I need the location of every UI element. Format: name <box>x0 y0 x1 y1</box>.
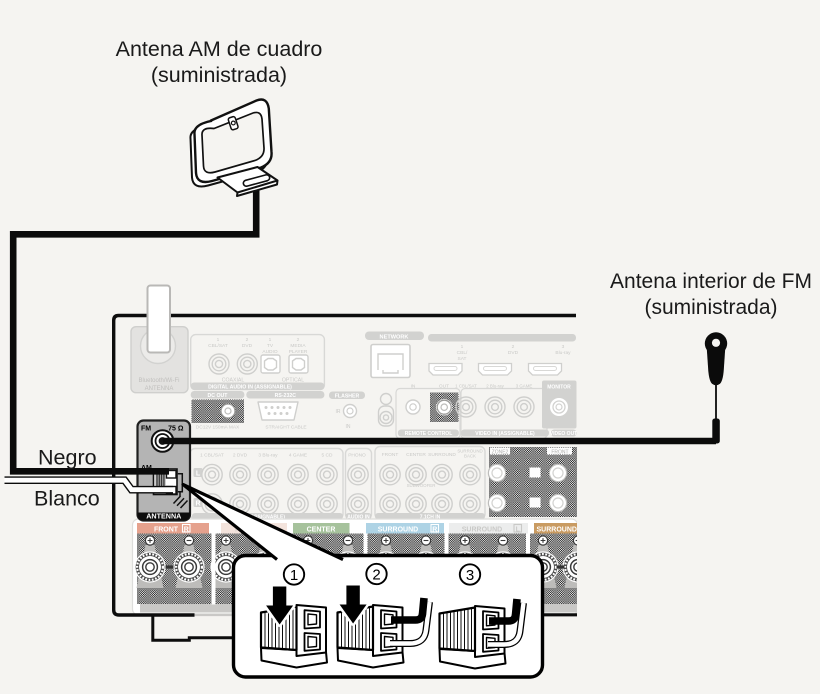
svg-text:Bluetooth/Wi-Fi: Bluetooth/Wi-Fi <box>138 378 179 384</box>
svg-text:CBL/: CBL/ <box>457 350 468 356</box>
svg-text:Negro: Negro <box>38 446 97 470</box>
svg-text:1: 1 <box>217 337 220 343</box>
svg-text:ANTENNA: ANTENNA <box>145 386 174 392</box>
svg-text:MONITOR: MONITOR <box>547 385 571 391</box>
svg-text:SURROUND: SURROUND <box>378 527 418 534</box>
svg-text:R: R <box>184 526 189 533</box>
svg-text:DC OUT: DC OUT <box>208 393 229 399</box>
svg-text:ZONE2: ZONE2 <box>492 450 509 456</box>
svg-text:PHONO: PHONO <box>348 453 366 459</box>
svg-text:Blu-ray: Blu-ray <box>555 350 571 356</box>
svg-text:1 CBL/SAT: 1 CBL/SAT <box>455 384 477 389</box>
svg-text:FRONT: FRONT <box>154 527 179 534</box>
svg-text:IN: IN <box>346 424 351 430</box>
svg-text:3 Blu-ray: 3 Blu-ray <box>258 453 278 459</box>
svg-text:FRONT: FRONT <box>382 452 399 458</box>
svg-text:1: 1 <box>290 567 298 584</box>
svg-text:FLASHER: FLASHER <box>335 394 360 400</box>
svg-text:CBL/SAT: CBL/SAT <box>208 343 228 349</box>
svg-text:STRAIGHT CABLE: STRAIGHT CABLE <box>265 425 306 431</box>
svg-text:VIDEO IN (ASSIGNABLE): VIDEO IN (ASSIGNABLE) <box>475 431 535 437</box>
svg-text:2: 2 <box>512 344 515 350</box>
svg-text:TV: TV <box>267 343 274 349</box>
svg-text:Antena AM de cuadro: Antena AM de cuadro <box>116 37 323 61</box>
svg-text:ANTENNA: ANTENNA <box>146 512 181 521</box>
svg-text:RS-232C: RS-232C <box>275 393 297 399</box>
svg-text:REMOTE CONTROL: REMOTE CONTROL <box>405 431 453 437</box>
svg-text:BACK: BACK <box>464 454 476 459</box>
svg-text:CENTER: CENTER <box>406 452 426 458</box>
svg-text:MEDIA: MEDIA <box>290 343 306 349</box>
svg-text:3: 3 <box>466 567 474 584</box>
svg-text:(suministrada): (suministrada) <box>644 296 777 319</box>
svg-text:CENTER: CENTER <box>307 527 336 534</box>
svg-text:1: 1 <box>461 344 464 350</box>
svg-text:DVD: DVD <box>508 350 519 356</box>
svg-text:2 Blu-ray: 2 Blu-ray <box>486 384 504 389</box>
svg-text:R: R <box>195 501 200 508</box>
svg-text:2: 2 <box>297 337 300 343</box>
svg-text:L: L <box>516 526 521 533</box>
svg-text:2 DVD: 2 DVD <box>233 453 248 459</box>
svg-text:SUBWOOFER: SUBWOOFER <box>407 483 436 488</box>
svg-text:Antena interior de FM: Antena interior de FM <box>610 270 812 293</box>
svg-text:75 Ω: 75 Ω <box>168 426 184 433</box>
svg-text:R: R <box>432 526 437 533</box>
svg-text:DVD: DVD <box>242 343 253 349</box>
svg-text:(suministrada): (suministrada) <box>151 63 287 87</box>
svg-text:DC12V 150mA MAX: DC12V 150mA MAX <box>196 425 240 431</box>
svg-text:L: L <box>196 471 201 478</box>
svg-text:FRONT: FRONT <box>551 450 568 456</box>
svg-text:VIDEO OUT: VIDEO OUT <box>550 431 578 437</box>
svg-text:2: 2 <box>372 567 380 584</box>
svg-text:SAT: SAT <box>458 356 467 362</box>
svg-text:Blanco: Blanco <box>34 487 100 511</box>
svg-text:1: 1 <box>269 337 272 343</box>
svg-text:4 GAME: 4 GAME <box>289 453 307 459</box>
svg-text:3: 3 <box>562 344 565 350</box>
svg-text:FM: FM <box>141 426 151 433</box>
svg-text:PLAYER: PLAYER <box>289 349 308 355</box>
svg-text:SURROUND: SURROUND <box>462 527 502 534</box>
svg-text:3 GAME: 3 GAME <box>516 384 533 389</box>
svg-text:NETWORK: NETWORK <box>380 335 409 341</box>
svg-text:IR: IR <box>336 409 341 415</box>
svg-text:DIGITAL AUDIO IN (ASSIGNABLE): DIGITAL AUDIO IN (ASSIGNABLE) <box>208 385 292 391</box>
svg-text:5 CD: 5 CD <box>322 453 333 459</box>
svg-text:AUDIO: AUDIO <box>262 349 277 355</box>
svg-text:2: 2 <box>246 337 249 343</box>
svg-text:SURROUND: SURROUND <box>428 452 456 458</box>
svg-text:1 CBL/SAT: 1 CBL/SAT <box>200 453 224 459</box>
